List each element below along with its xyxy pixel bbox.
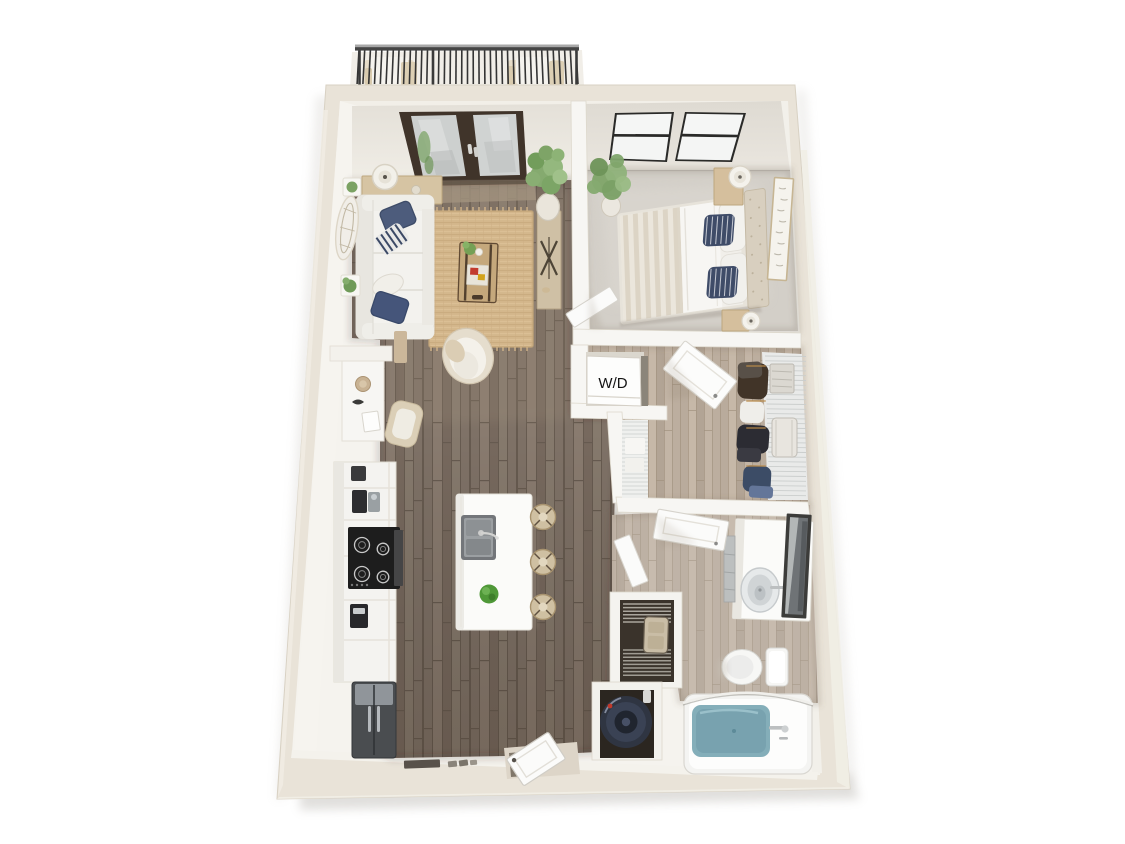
svg-text:W/D: W/D bbox=[598, 375, 627, 392]
